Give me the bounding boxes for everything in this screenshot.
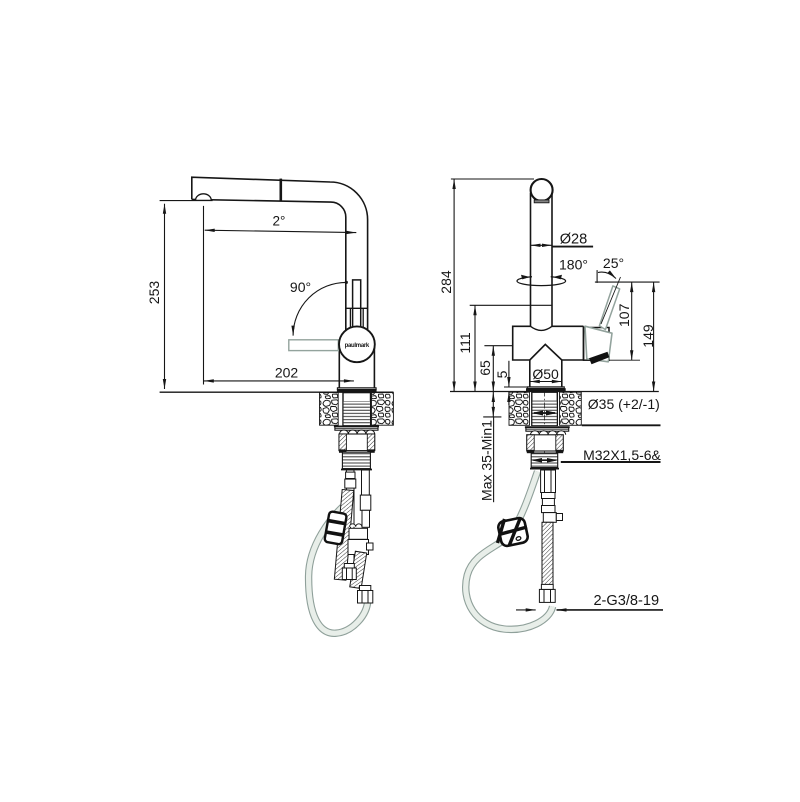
- svg-text:2°: 2°: [273, 214, 286, 229]
- svg-text:202: 202: [275, 364, 299, 380]
- svg-text:Max 35-Min1: Max 35-Min1: [478, 420, 494, 501]
- svg-text:107: 107: [616, 303, 632, 327]
- svg-text:Ø35 (+2/-1): Ø35 (+2/-1): [588, 396, 660, 412]
- svg-text:180°: 180°: [559, 257, 588, 273]
- svg-text:25°: 25°: [603, 255, 624, 271]
- svg-text:90°: 90°: [290, 279, 311, 295]
- svg-text:Ø50: Ø50: [532, 366, 559, 382]
- svg-text:M32X1,5-6&: M32X1,5-6&: [583, 447, 661, 463]
- svg-text:253: 253: [146, 281, 162, 305]
- svg-text:111: 111: [457, 332, 473, 353]
- svg-text:284: 284: [438, 270, 454, 294]
- svg-text:paulmark: paulmark: [345, 343, 370, 349]
- svg-text:2-G3/8-19: 2-G3/8-19: [593, 593, 659, 609]
- svg-text:65: 65: [477, 360, 493, 376]
- svg-text:Ø28: Ø28: [560, 232, 588, 248]
- svg-text:5: 5: [494, 370, 510, 378]
- svg-text:149: 149: [640, 324, 656, 348]
